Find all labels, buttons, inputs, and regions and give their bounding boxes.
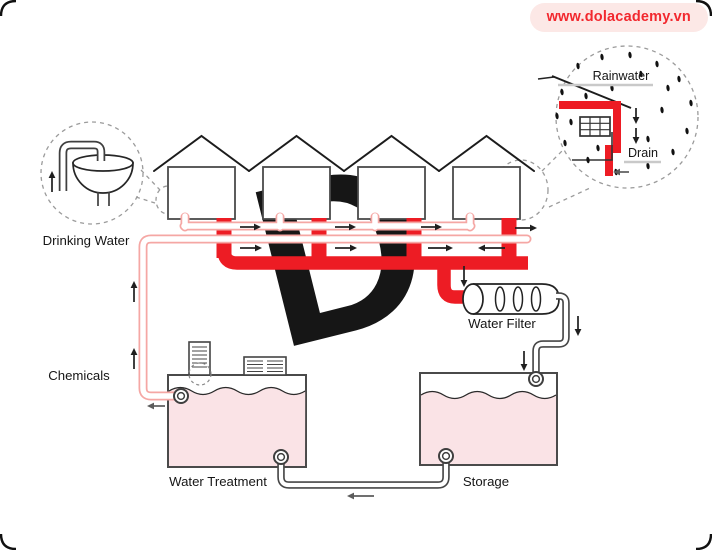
rain-drop-icon xyxy=(677,76,681,83)
rain-drop-icon xyxy=(586,157,590,164)
window-icon xyxy=(580,117,610,136)
flow-arrow xyxy=(347,493,374,500)
label-water-filter: Water Filter xyxy=(468,316,536,331)
vent-grille-icon xyxy=(244,357,286,375)
roof xyxy=(439,136,534,171)
flow-arrow xyxy=(49,171,56,192)
label-water-treatment: Water Treatment xyxy=(169,474,267,489)
rain-drop-icon xyxy=(689,100,693,107)
flow-arrow xyxy=(521,351,528,371)
rain-drop-icon xyxy=(563,140,567,147)
label-drain: Drain xyxy=(628,146,658,160)
rain-drop-icon xyxy=(600,54,604,61)
rain-drop-icon xyxy=(671,149,675,156)
flow-arrow xyxy=(633,128,640,144)
flow-arrow xyxy=(515,225,537,232)
flow-arrow xyxy=(131,348,138,369)
website-url: www.dolacademy.vn xyxy=(547,9,691,25)
rain-drop-icon xyxy=(646,163,650,170)
rain-drop-icon xyxy=(584,93,588,100)
water-treatment-tank xyxy=(168,342,306,467)
flow-arrow xyxy=(131,281,138,302)
label-chemicals: Chemicals xyxy=(48,368,110,383)
rain-drop-icon xyxy=(646,136,650,143)
water-filter-icon xyxy=(463,284,559,314)
flow-arrow xyxy=(428,245,453,252)
roof-gutter-red-pipe xyxy=(559,105,617,176)
gutter-drain-icon xyxy=(538,76,631,176)
rain-drop-icon xyxy=(569,119,573,126)
rain-drop-icon xyxy=(655,61,659,68)
faucet-sink-icon xyxy=(63,145,133,206)
website-badge[interactable]: www.dolacademy.vn xyxy=(530,3,708,32)
water-system-diagram: D xyxy=(0,0,712,550)
label-rainwater: Rainwater xyxy=(593,69,650,83)
flow-arrow xyxy=(575,316,582,336)
flow-arrow xyxy=(478,245,505,252)
rain-drop-icon xyxy=(560,89,564,96)
rain-drop-icon xyxy=(685,128,689,135)
flow-arrow xyxy=(147,403,165,410)
rain-drop-icon xyxy=(666,85,670,92)
flow-arrow xyxy=(633,108,640,124)
label-drinking-water: Drinking Water xyxy=(43,233,130,248)
label-storage: Storage xyxy=(463,474,509,489)
house-4 xyxy=(439,136,534,219)
diagram-page: www.dolacademy.vn D xyxy=(0,0,712,550)
rain-drop-icon xyxy=(660,107,664,114)
rain-drop-icon xyxy=(596,145,600,152)
rain-drop-icon xyxy=(628,52,632,59)
